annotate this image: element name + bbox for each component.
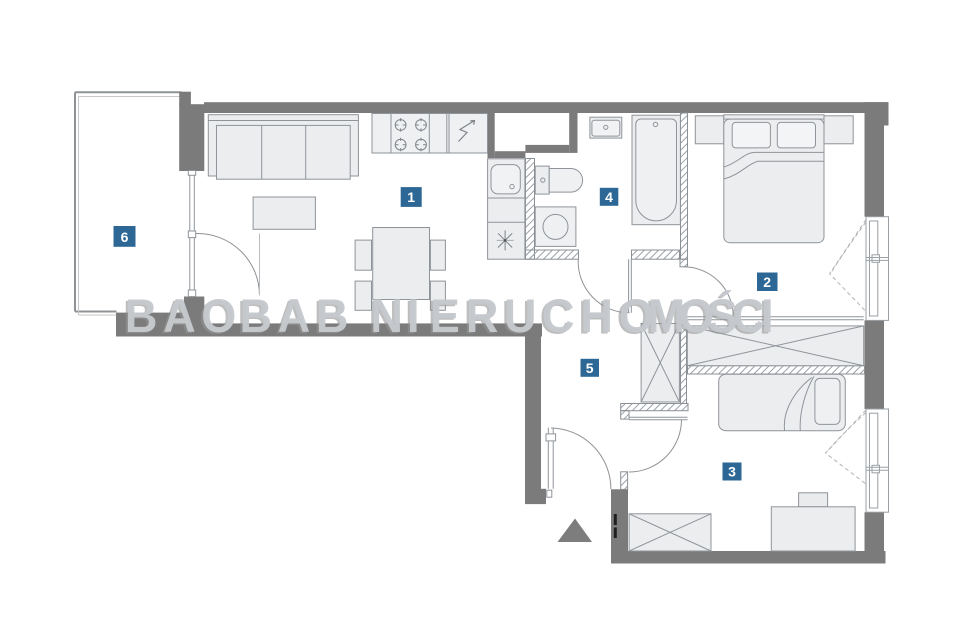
svg-text:1: 1 — [407, 189, 415, 205]
svg-text:2: 2 — [763, 274, 771, 290]
svg-text:3: 3 — [728, 464, 736, 480]
svg-text:4: 4 — [605, 189, 613, 205]
svg-text:6: 6 — [121, 229, 129, 245]
svg-text:5: 5 — [586, 360, 594, 376]
svg-text:BAOBABNIERUCHOMOŚCI: BAOBABNIERUCHOMOŚCI — [125, 289, 774, 342]
